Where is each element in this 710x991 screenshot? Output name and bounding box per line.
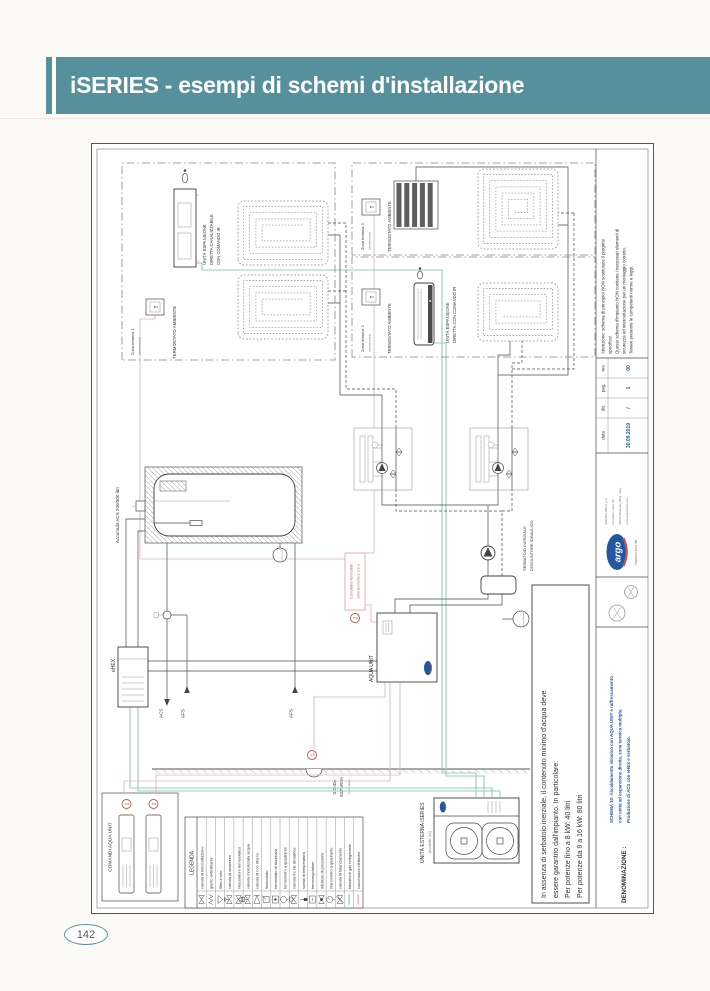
svg-text:(temperatura): (temperatura): [368, 334, 372, 352]
svg-text:Attenzione: schema di principi: Attenzione: schema di principio! NON sos…: [601, 238, 606, 354]
company-line: Via Alfeno Varo 35: [611, 499, 615, 525]
comandi-label: COMANDI AQUA UNIT: [108, 822, 114, 872]
svg-text:valvola di bilanciamento: valvola di bilanciamento: [338, 848, 343, 889]
denominazione-line: con unità ad espansione diretta, zona te…: [618, 709, 623, 823]
svg-text:(opzionale): (opzionale): [347, 780, 351, 795]
header-divider: [0, 118, 710, 119]
remote-control-1: [119, 815, 134, 893]
svg-text:Per potenze fino a 8 kW: 40 li: Per potenze fino a 8 kW: 40 litri: [565, 800, 572, 898]
svg-text:CON COMANDO IR: CON COMANDO IR: [216, 227, 221, 265]
outdoor-unit-model: (modello XX): [428, 830, 432, 853]
inertia-note-box: In assenza di serbatoio inerziale, il co…: [532, 585, 589, 903]
svg-text:(temperatura): (temperatura): [138, 337, 142, 355]
page-header: iSERIES - esempi di schemi d'installazio…: [46, 57, 710, 114]
svg-text:Tenere presente le competenti: Tenere presente le competenti norme e le…: [629, 266, 634, 354]
company-line: 25020 Alfianello (BS) - Italy: [618, 487, 622, 525]
page-number-badge: 142: [64, 924, 108, 945]
svg-text:specifico!: specifico!: [608, 336, 613, 354]
company-line: www.argoclima.com: [625, 497, 629, 525]
svg-text:miscelatore termostatico: miscelatore termostatico: [236, 847, 241, 889]
svg-text:T: T: [154, 305, 160, 308]
svg-text:(temperatura): (temperatura): [368, 232, 372, 250]
svg-text:flussostato: flussostato: [264, 870, 269, 889]
radiator: [394, 181, 438, 229]
svg-text:UNITÀ ESPANSIONE: UNITÀ ESPANSIONE: [445, 302, 450, 343]
svg-text:filtro a rete: filtro a rete: [218, 871, 223, 889]
header-accent-stripe: [52, 57, 56, 114]
svg-text:SERBATOIO INERZIALE: SERBATOIO INERZIALE: [522, 526, 527, 571]
legend: LEGENDA valvola di intercettazionegiunto…: [185, 817, 363, 908]
svg-text:valvola di sicurezza: valvola di sicurezza: [227, 854, 232, 889]
marker-1: 1: [311, 753, 317, 756]
field-value: /: [626, 407, 632, 409]
svg-text:riduttore di pressione: riduttore di pressione: [319, 853, 324, 889]
page-number: 142: [77, 929, 95, 941]
svg-text:sicurezza ed intercettazione p: sicurezza ed intercettazione per un mont…: [622, 247, 627, 354]
thermostat: T: [362, 199, 380, 215]
svg-text:valvola tre vie deviatrice: valvola tre vie deviatrice: [292, 847, 297, 889]
argo-logo-small: [424, 661, 432, 675]
marker-2: 2: [152, 802, 158, 805]
company-line: ARGOCLIMA S.p.A.: [604, 497, 608, 525]
svg-text:T: T: [370, 295, 376, 298]
svg-text:DIRETTA CANALIZZABILE: DIRETTA CANALIZZABILE: [209, 214, 214, 265]
page-title: iSERIES - esempi di schemi d'installazio…: [70, 57, 524, 114]
field-value: 00: [626, 365, 632, 371]
denominazione-label: DENOMINAZIONE :: [621, 847, 628, 903]
svg-text:connessioni elettriche: connessioni elettriche: [356, 852, 361, 889]
svg-text:DISGIUNTORE IDRAULICO: DISGIUNTORE IDRAULICO: [529, 520, 534, 571]
svg-text:UNITÀ ESPANSIONE: UNITÀ ESPANSIONE: [202, 224, 207, 265]
zone-name: Zona termica 3: [360, 223, 365, 250]
zone-name: Zona termica 2: [360, 325, 365, 352]
field-label: data: [601, 431, 606, 440]
svg-text:T: T: [370, 205, 376, 208]
denominazione-line: SCHEMA 10: riscaldamento idronico con AQ…: [609, 676, 614, 823]
svg-text:sonda di temperatura: sonda di temperatura: [301, 851, 306, 889]
comandi-aqua-unit: COMANDI AQUA UNIT 1 2: [102, 793, 178, 901]
svg-text:valvola motorizzata acqua: valvola motorizzata acqua: [246, 843, 251, 889]
ducted-indoor-unit: [174, 189, 199, 267]
afs-label: AFS: [289, 709, 294, 718]
schematic-sheet: DENOMINAZIONE : SCHEMA 10: riscaldamento…: [90, 142, 655, 915]
svg-text:Per potenze da 9 a 16 kW: 80 l: Per potenze da 9 a 16 kW: 80 litri: [577, 794, 584, 898]
afs-label: AFS: [181, 709, 186, 718]
outdoor-unit-label: UNITÀ ESTERNA iSERIES: [419, 802, 426, 863]
svg-text:termoregolatore: termoregolatore: [310, 862, 315, 889]
thermostat-label: TERMOSTATO AMBIENTE: [387, 201, 392, 252]
svg-text:valvola di non ritorno: valvola di non ritorno: [255, 853, 260, 889]
svg-text:essere garantito dall'impianto: essere garantito dall'impianto. In parti…: [553, 761, 560, 898]
svg-text:DIRETTA CON COMANDO IR: DIRETTA CON COMANDO IR: [452, 287, 457, 343]
svg-text:zone termiche 1 2 e 3: zone termiche 1 2 e 3: [357, 564, 361, 599]
denominazione-line: Produzione di ACS con eHEX e serbatoio.: [626, 736, 631, 823]
svg-text:manometro a quadrante: manometro a quadrante: [329, 847, 334, 889]
legend-title: LEGENDA: [190, 850, 196, 875]
svg-text:Cumulativo termostati: Cumulativo termostati: [350, 564, 354, 599]
tank-label: Accumulo ACS 200/300 litri: [115, 487, 120, 543]
svg-text:In assenza di serbatoio inerzi: In assenza di serbatoio inerziale, il co…: [541, 690, 548, 898]
thermostat-label: TERMOSTATO AMBIENTE: [387, 303, 392, 354]
marker-1: 1: [125, 802, 131, 805]
field-value: 1: [626, 386, 632, 389]
circulation-pump: [481, 546, 495, 560]
field-label: pag.: [601, 384, 606, 393]
zone-pump-group-1: [354, 428, 412, 490]
svg-text:giunto antivibrante: giunto antivibrante: [209, 857, 214, 889]
acs-label: ACS: [159, 709, 164, 718]
svg-text:termometro a quadrante: termometro a quadrante: [282, 847, 287, 889]
installation-diagram: DENOMINAZIONE : SCHEMA 10: riscaldamento…: [90, 142, 655, 915]
svg-text:tubazione gas refrigerante: tubazione gas refrigerante: [347, 844, 352, 889]
argo-logo-text: argo: [613, 542, 624, 563]
svg-text:Questo schema d'impianto NON c: Questo schema d'impianto NON contiene i …: [615, 229, 620, 354]
aqua-unit-label: AQUA UNIT: [369, 655, 375, 682]
field-label: dis.: [601, 405, 606, 412]
remote-control-2: [146, 815, 161, 893]
aqua-unit: AQUA UNIT: [369, 613, 437, 682]
ehex-label: eHEX: [111, 658, 117, 672]
field-label: rev.: [601, 365, 606, 372]
svg-text:valvola di intercettazione: valvola di intercettazione: [199, 846, 204, 889]
outdoor-unit: UNITÀ ESTERNA iSERIES (modello XX): [419, 798, 519, 863]
zone-name: Zona termica 1: [130, 328, 135, 355]
marker-2: 2: [354, 616, 360, 619]
svg-text:SONDA: SONDA: [332, 779, 337, 794]
brand-tagline: improve your life: [634, 539, 638, 564]
svg-text:termostato di sicurezza: termostato di sicurezza: [273, 848, 278, 889]
zone-pump-group-2: [470, 428, 528, 490]
manual-page: iSERIES - esempi di schemi d'installazio…: [0, 0, 710, 991]
thermostat: T: [362, 289, 380, 305]
schematic-sheet-rotated: DENOMINAZIONE : SCHEMA 10: riscaldamento…: [90, 142, 655, 915]
thermostat: T: [146, 299, 164, 315]
thermostat-label: TERMOSTATO AMBIENTE: [172, 306, 177, 359]
wall-split-unit: [414, 283, 434, 345]
argo-logo-small: [440, 802, 446, 813]
field-value: 30.09.2019: [626, 423, 632, 448]
svg-text:ESTERNA: ESTERNA: [339, 777, 344, 797]
